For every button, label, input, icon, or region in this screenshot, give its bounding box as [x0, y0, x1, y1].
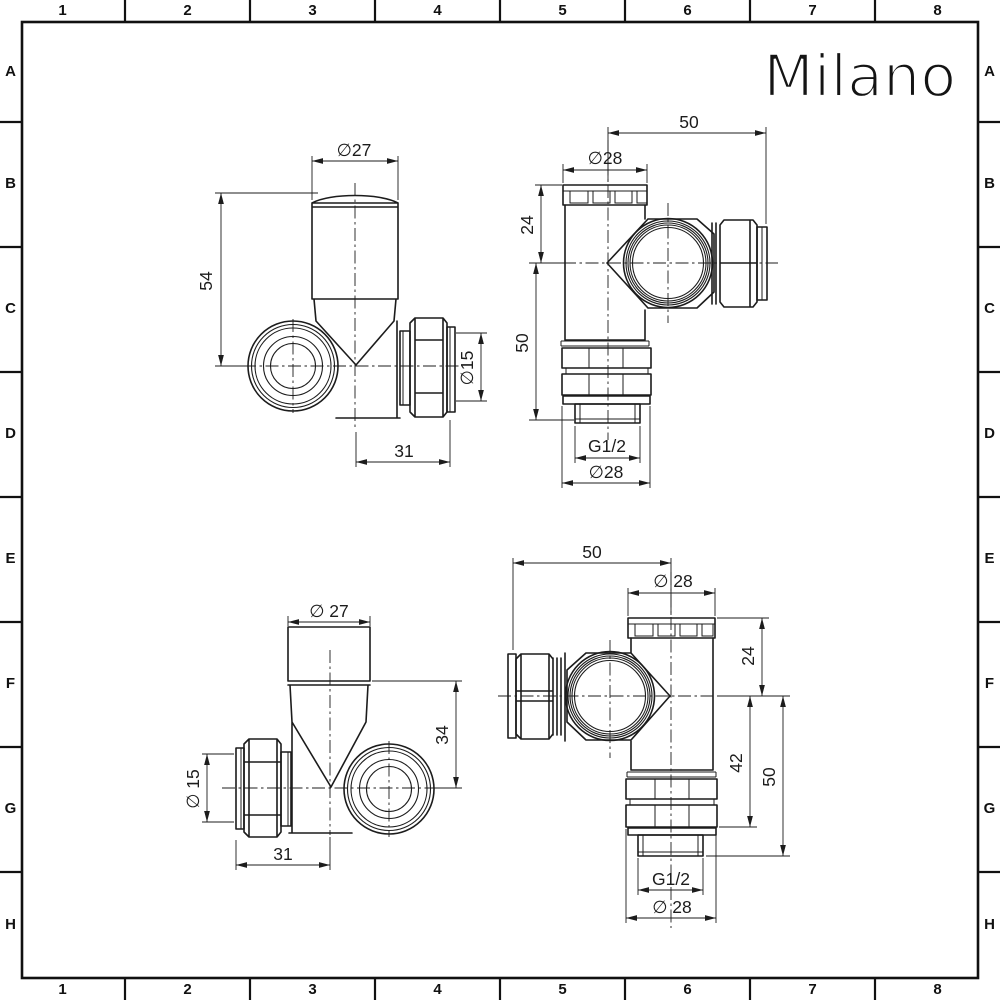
grid-row-label: F — [979, 674, 1000, 694]
grid-row-label: G — [0, 799, 21, 819]
grid-column-label: 8 — [875, 980, 1000, 1000]
grid-column-label: 7 — [750, 1, 875, 21]
dim-body-diameter: ∅28 — [589, 462, 624, 482]
drawing-sheet: Milano ∅27 54 ∅15 — [0, 0, 1000, 1000]
dim-outlet-diameter: ∅ 15 — [183, 769, 203, 809]
brand-logo: Milano — [763, 42, 956, 110]
grid-column-label: 4 — [375, 980, 500, 1000]
dim-depth: 50 — [679, 112, 699, 132]
grid-column-label: 6 — [625, 980, 750, 1000]
dim-outlet-diameter: ∅15 — [457, 351, 477, 386]
dim-body-diameter: ∅ 28 — [652, 897, 692, 917]
grid-column-label: 6 — [625, 1, 750, 21]
valve-view-top-right: 50 ∅28 24 50 G1/2 ∅28 — [512, 112, 778, 488]
grid-column-label: 8 — [875, 1, 1000, 21]
valve-view-bottom-right: 50 ∅ 28 24 42 50 G1/2 ∅ 28 — [498, 542, 790, 928]
dim-height: 54 — [196, 271, 216, 291]
valve-view-top-left: ∅27 54 ∅15 31 — [196, 140, 487, 467]
grid-column-label: 2 — [125, 1, 250, 21]
grid-row-label: D — [0, 424, 21, 444]
grid-column-label: 5 — [500, 980, 625, 1000]
grid-row-label: C — [979, 299, 1000, 319]
grid-row-label: D — [979, 424, 1000, 444]
grid-column-label: 2 — [125, 980, 250, 1000]
grid-row-label: G — [979, 799, 1000, 819]
dim-axis-to-thread: 50 — [512, 333, 532, 353]
technical-drawing: Milano ∅27 54 ∅15 — [0, 0, 1000, 1000]
grid-row-label: F — [0, 674, 21, 694]
grid-column-label: 1 — [0, 980, 125, 1000]
dim-cap-to-axis: 24 — [517, 215, 537, 235]
dim-axis-to-thread: 50 — [759, 767, 779, 787]
grid-row-label: A — [0, 62, 21, 82]
grid-row-label: H — [0, 915, 21, 935]
dim-cap-diameter: ∅ 28 — [653, 571, 693, 591]
dim-head-diameter: ∅27 — [337, 140, 372, 160]
grid-row-label: C — [0, 299, 21, 319]
dim-rim-to-axis: 34 — [432, 725, 452, 745]
grid-column-label: 5 — [500, 1, 625, 21]
dim-cap-diameter: ∅28 — [588, 148, 623, 168]
dim-depth: 50 — [582, 542, 602, 562]
grid-column-label: 3 — [250, 1, 375, 21]
grid-row-label: A — [979, 62, 1000, 82]
grid-row-label: E — [979, 549, 1000, 569]
grid-column-label: 4 — [375, 1, 500, 21]
grid-column-label: 7 — [750, 980, 875, 1000]
dim-offset: 31 — [273, 844, 292, 864]
valve-view-bottom-left: ∅ 27 34 ∅ 15 31 — [183, 601, 462, 870]
dim-axis-to-nut: 42 — [726, 753, 746, 772]
grid-column-label: 1 — [0, 1, 125, 21]
dim-cap-to-axis: 24 — [738, 646, 758, 666]
grid-column-label: 3 — [250, 980, 375, 1000]
grid-row-label: B — [979, 174, 1000, 194]
grid-row-label: E — [0, 549, 21, 569]
grid-row-label: H — [979, 915, 1000, 935]
dim-thread-size: G1/2 — [652, 869, 690, 889]
dim-thread-size: G1/2 — [588, 436, 626, 456]
sheet-frame — [0, 0, 1000, 1000]
grid-row-label: B — [0, 174, 21, 194]
dim-offset: 31 — [394, 441, 413, 461]
dim-head-diameter: ∅ 27 — [309, 601, 349, 621]
